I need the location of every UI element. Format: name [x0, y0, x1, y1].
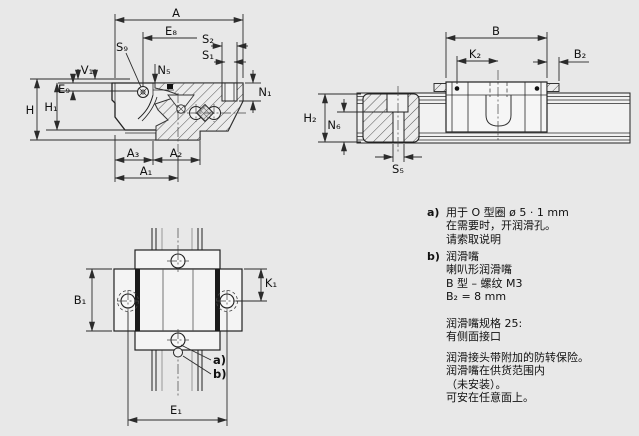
dim-label-A3: A₃ — [127, 146, 140, 160]
dim-label-A1: A₁ — [140, 164, 152, 178]
technical-drawing-page: A E₈ S₉ S₂ S₁ N₅ V₁ E₉ H H₁ N₁ A₃ A₂ A₁ — [0, 0, 639, 436]
dim-label-S9: S₉ — [116, 40, 128, 54]
dim-label-E1: E₁ — [170, 403, 182, 417]
side-view: B K₂ B₂ H₂ N₆ S₅ — [303, 24, 630, 176]
dim-label-E9: E₉ — [58, 82, 70, 96]
dim-label-H: H — [26, 103, 35, 117]
dim-label-K1: K₁ — [265, 276, 277, 290]
top-view: B₁ K₁ E₁ a) b) — [74, 228, 277, 426]
dim-label-V1: V₁ — [81, 63, 93, 77]
dim-label-S2: S₂ — [202, 32, 214, 46]
dim-label-N1: N₁ — [258, 85, 271, 99]
dim-label-S1: S₁ — [202, 48, 214, 62]
callout-a-label: a) — [213, 353, 226, 367]
dim-label-K2: K₂ — [469, 47, 481, 61]
dim-label-B1: B₁ — [74, 293, 87, 307]
callout-b-label: b) — [213, 367, 227, 381]
dim-label-H2: H₂ — [303, 111, 316, 125]
dim-label-H1: H₁ — [44, 100, 57, 114]
dim-label-A2: A₂ — [170, 146, 182, 160]
technical-drawing: A E₈ S₉ S₂ S₁ N₅ V₁ E₉ H H₁ N₁ A₃ A₂ A₁ — [0, 0, 639, 436]
dim-label-N5: N₅ — [157, 63, 171, 77]
dim-label-N6: N₆ — [327, 118, 341, 132]
dim-label-B: B — [492, 24, 500, 38]
cross-section-view: A E₈ S₉ S₂ S₁ N₅ V₁ E₉ H H₁ N₁ A₃ A₂ A₁ — [26, 6, 272, 182]
dim-label-A: A — [172, 6, 180, 20]
dim-label-B2: B₂ — [574, 47, 587, 61]
dim-label-S5: S₅ — [392, 162, 404, 176]
dim-label-E8: E₈ — [165, 24, 177, 38]
